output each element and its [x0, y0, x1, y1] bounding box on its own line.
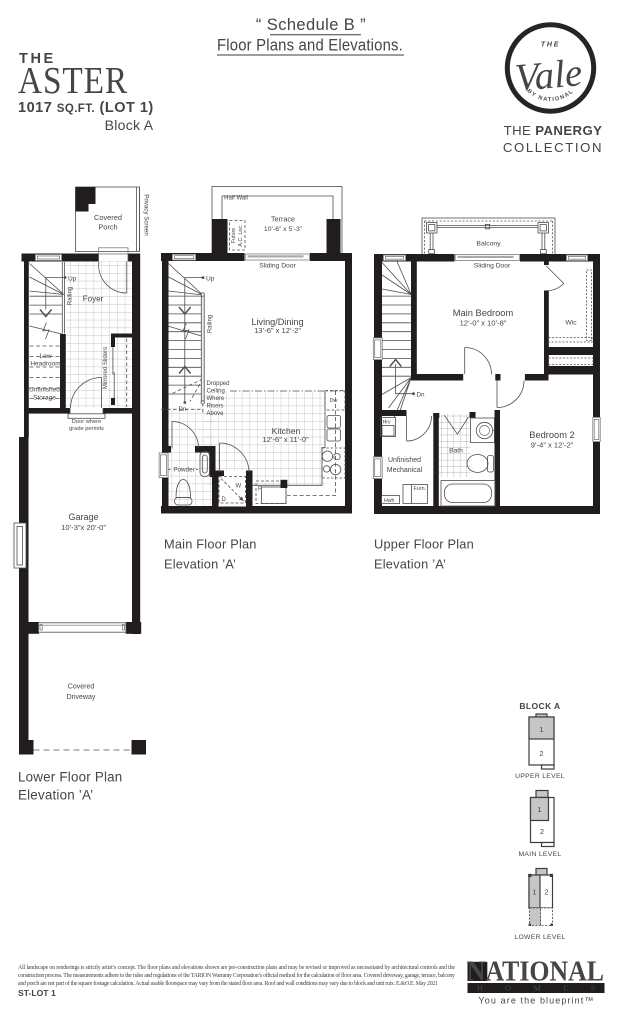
svg-text:THE PANERGY: THE PANERGY [504, 123, 603, 138]
svg-text:and porch are not part of the: and porch are not part of the square foo… [18, 980, 438, 987]
svg-text:Door where: Door where [72, 419, 101, 425]
svg-text:Headroom: Headroom [30, 361, 60, 368]
svg-text:Balcony: Balcony [476, 241, 501, 248]
svg-text:Dw: Dw [330, 398, 338, 404]
svg-text:Furn.: Furn. [414, 486, 427, 492]
svg-text:Up: Up [206, 275, 215, 282]
svg-text:Powder: Powder [173, 467, 194, 474]
svg-text:Storage: Storage [33, 395, 56, 402]
svg-text:ASTER: ASTER [18, 60, 128, 102]
svg-text:D: D [222, 497, 227, 503]
svg-text:W: W [236, 484, 242, 490]
svg-text:1: 1 [539, 725, 543, 734]
svg-text:12’-0” x 10’-8”: 12’-0” x 10’-8” [460, 319, 507, 328]
svg-text:All landscape on renderings is: All landscape on renderings is strictly … [18, 964, 455, 971]
svg-text:Mirrored Sliders: Mirrored Sliders [103, 347, 109, 389]
svg-text:12’-6” x 11’-0”: 12’-6” x 11’-0” [262, 435, 309, 444]
svg-text:A.C. Loc.: A.C. Loc. [238, 224, 244, 246]
svg-text:MAIN LEVEL: MAIN LEVEL [518, 851, 561, 858]
svg-text:Elevation ’A’: Elevation ’A’ [374, 557, 446, 572]
svg-text:Elevation ’A’: Elevation ’A’ [164, 557, 236, 572]
svg-text:Half Wall: Half Wall [224, 196, 248, 202]
svg-text:Where: Where [207, 396, 225, 402]
svg-text:NATIONAL: NATIONAL [467, 955, 604, 986]
svg-text:Unfinished: Unfinished [388, 457, 421, 464]
svg-text:Covered: Covered [68, 684, 95, 691]
svg-text:Upper Floor Plan: Upper Floor Plan [374, 537, 474, 552]
svg-text:Up: Up [68, 275, 77, 282]
svg-text:Ceiling: Ceiling [207, 389, 225, 395]
svg-text:Block A: Block A [105, 117, 154, 133]
svg-text:Sliding Door: Sliding Door [474, 263, 511, 270]
svg-text:ST-LOT 1: ST-LOT 1 [18, 988, 56, 998]
svg-text:2: 2 [539, 749, 543, 758]
svg-text:“ Schedule B ”: “ Schedule B ” [256, 16, 366, 34]
svg-text:grade permits: grade permits [69, 426, 104, 432]
svg-text:Terrace: Terrace [271, 215, 295, 224]
svg-text:Driveway: Driveway [67, 694, 96, 701]
svg-text:Above: Above [207, 411, 225, 417]
svg-text:Main Bedroom: Main Bedroom [453, 308, 514, 318]
svg-text:2: 2 [544, 888, 548, 897]
svg-text:Covered: Covered [94, 213, 122, 222]
svg-text:N: N [467, 955, 486, 986]
svg-text:Dn: Dn [179, 406, 188, 413]
svg-text:F: F [258, 487, 262, 493]
svg-text:You are the blueprint™: You are the blueprint™ [479, 995, 595, 1005]
svg-text:2: 2 [540, 827, 544, 836]
svg-text:Unfinished: Unfinished [29, 387, 60, 394]
svg-text:10’-6” x 5’-3”: 10’-6” x 5’-3” [264, 226, 303, 233]
svg-text:9’-4” x 12’-2”: 9’-4” x 12’-2” [531, 440, 574, 449]
svg-text:LOWER LEVEL: LOWER LEVEL [514, 934, 565, 941]
svg-text:Bedroom 2: Bedroom 2 [529, 430, 574, 440]
svg-text:Low: Low [40, 353, 52, 360]
svg-text:Future: Future [231, 228, 237, 244]
svg-text:BLOCK A: BLOCK A [519, 701, 560, 711]
svg-text:Wic: Wic [565, 320, 577, 327]
svg-text:Elevation ’A’: Elevation ’A’ [18, 788, 93, 803]
svg-text:Hrv: Hrv [383, 420, 391, 426]
svg-text:construction process. The mea: construction process. The measurements a… [18, 972, 455, 979]
svg-text:Railing: Railing [207, 315, 213, 333]
svg-text:Porch: Porch [98, 223, 117, 232]
svg-text:Main Floor Plan: Main Floor Plan [164, 537, 257, 552]
svg-text:Dropped: Dropped [207, 381, 230, 387]
svg-text:Lower Floor Plan: Lower Floor Plan [18, 770, 122, 785]
svg-text:Garage: Garage [68, 512, 98, 522]
svg-text:13’-6” x 12’-2”: 13’-6” x 12’-2” [254, 326, 301, 335]
svg-text:1: 1 [537, 805, 541, 814]
svg-text:Foyer: Foyer [83, 295, 104, 304]
svg-text:1017 SQ.FT. (LOT 1): 1017 SQ.FT. (LOT 1) [18, 100, 154, 116]
svg-text:UPPER LEVEL: UPPER LEVEL [515, 773, 565, 780]
svg-text:Floor Plans and Elevations.: Floor Plans and Elevations. [217, 37, 403, 55]
svg-text:Hwh: Hwh [384, 498, 394, 504]
svg-text:COLLECTION: COLLECTION [503, 140, 603, 155]
svg-text:Dn: Dn [417, 392, 426, 399]
svg-text:Privacy Screen: Privacy Screen [143, 194, 150, 236]
svg-text:Mechanical: Mechanical [387, 467, 423, 474]
svg-text:THE: THE [541, 42, 560, 49]
svg-text:Railing: Railing [67, 287, 73, 305]
svg-text:H O M E S: H O M E S [477, 984, 595, 993]
svg-text:10’-3”x 20’-0”: 10’-3”x 20’-0” [61, 523, 106, 532]
svg-text:1: 1 [532, 888, 536, 897]
svg-text:Risers: Risers [207, 403, 224, 409]
svg-text:Bath: Bath [449, 447, 463, 454]
svg-text:Sliding Door: Sliding Door [259, 263, 296, 270]
